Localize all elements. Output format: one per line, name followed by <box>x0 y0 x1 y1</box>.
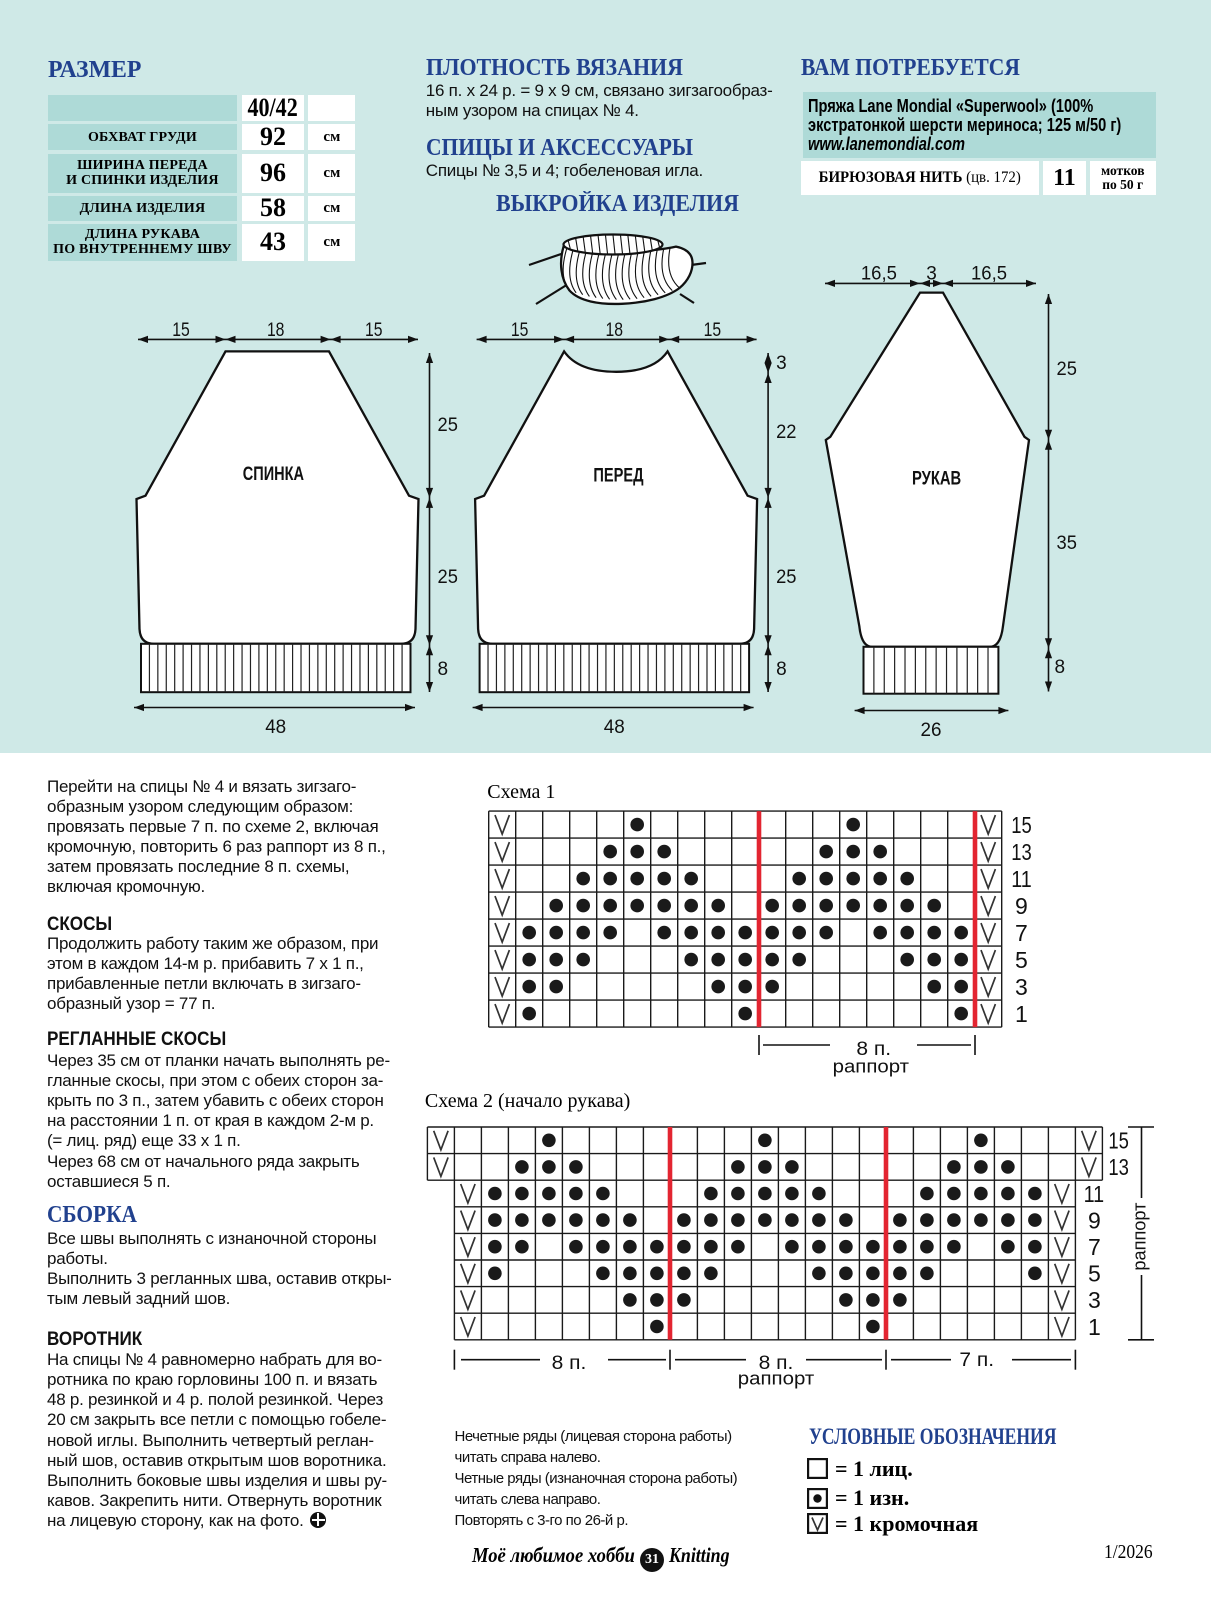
svg-text:26: 26 <box>921 720 942 741</box>
svg-text:13: 13 <box>1108 1154 1129 1180</box>
svg-text:25: 25 <box>438 567 458 588</box>
svg-text:13: 13 <box>1011 839 1032 865</box>
svg-text:15: 15 <box>1011 812 1032 838</box>
svg-text:15: 15 <box>511 320 529 341</box>
svg-text:7: 7 <box>1015 920 1028 946</box>
svg-text:1: 1 <box>1015 1001 1028 1027</box>
svg-text:8: 8 <box>1055 657 1066 678</box>
svg-text:7 п.: 7 п. <box>959 1350 994 1371</box>
svg-text:35: 35 <box>1057 533 1077 554</box>
svg-text:48: 48 <box>265 717 286 738</box>
svg-text:раппорт: раппорт <box>833 1057 909 1077</box>
svg-text:16,5: 16,5 <box>861 264 897 285</box>
svg-text:11: 11 <box>1011 866 1032 892</box>
svg-text:1: 1 <box>1088 1314 1101 1340</box>
svg-text:18: 18 <box>267 320 285 341</box>
svg-text:9: 9 <box>1015 893 1028 919</box>
svg-text:раппорт: раппорт <box>1130 1203 1150 1271</box>
svg-text:8 п.: 8 п. <box>552 1353 587 1374</box>
svg-text:22: 22 <box>776 422 796 443</box>
svg-text:11: 11 <box>1084 1181 1105 1207</box>
svg-text:16,5: 16,5 <box>971 264 1007 285</box>
svg-text:25: 25 <box>776 567 796 588</box>
svg-text:18: 18 <box>606 320 624 341</box>
svg-text:15: 15 <box>704 320 722 341</box>
svg-text:РУКАВ: РУКАВ <box>912 468 961 489</box>
svg-text:СПИНКА: СПИНКА <box>243 464 304 485</box>
svg-text:5: 5 <box>1088 1261 1101 1287</box>
svg-text:9: 9 <box>1088 1207 1101 1233</box>
svg-text:15: 15 <box>1108 1128 1129 1154</box>
svg-text:25: 25 <box>1057 359 1077 380</box>
svg-text:3: 3 <box>1015 974 1028 1000</box>
svg-text:раппорт: раппорт <box>738 1368 814 1388</box>
svg-text:ПЕРЕД: ПЕРЕД <box>593 466 643 487</box>
svg-text:8: 8 <box>776 659 787 680</box>
svg-text:15: 15 <box>172 320 190 341</box>
svg-text:7: 7 <box>1088 1234 1101 1260</box>
svg-text:48: 48 <box>604 717 625 738</box>
svg-text:5: 5 <box>1015 947 1028 973</box>
svg-text:3: 3 <box>926 264 937 285</box>
svg-text:3: 3 <box>776 353 787 374</box>
svg-text:25: 25 <box>438 415 458 436</box>
svg-text:3: 3 <box>1088 1287 1101 1313</box>
svg-text:15: 15 <box>365 320 383 341</box>
svg-text:8: 8 <box>438 659 449 680</box>
